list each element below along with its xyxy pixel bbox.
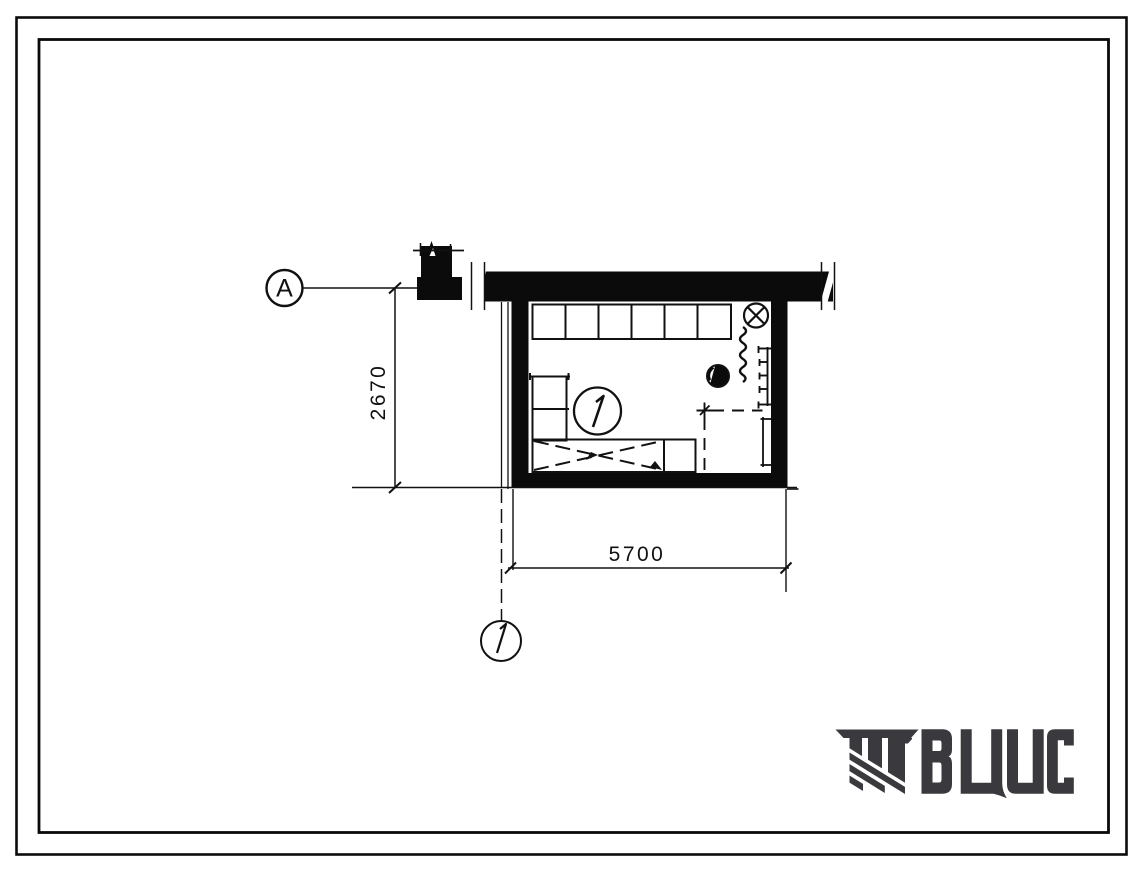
svg-text:2670: 2670 [367,364,390,421]
svg-text:A: A [276,275,293,303]
svg-text:5700: 5700 [609,543,666,566]
